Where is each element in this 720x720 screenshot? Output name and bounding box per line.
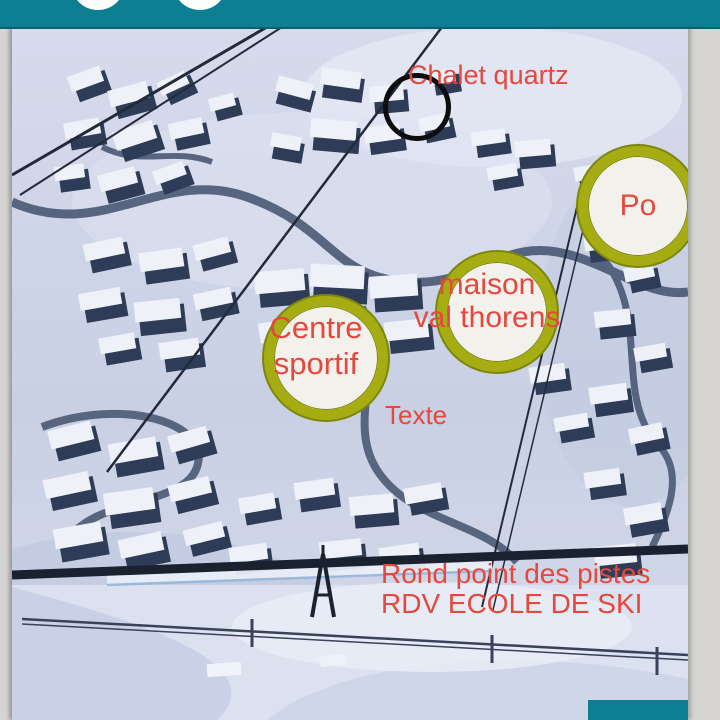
label-texte-placeholder[interactable]: Texte	[385, 400, 447, 431]
label-rond-point-line1: Rond point des pistes	[381, 559, 650, 589]
bottom-toolbar-corner	[588, 700, 688, 720]
logo-circle-icon	[173, 0, 227, 10]
resort-map[interactable]: Chalet quartz Po maison val thorens Cent…	[12, 27, 688, 720]
label-rond-point-line2: RDV ECOLE DE SKI	[381, 589, 650, 619]
logo-circle-icon	[71, 0, 125, 10]
top-bar	[0, 0, 720, 29]
label-centre-line1: Centre	[216, 310, 416, 346]
marker-po[interactable]: Po	[578, 146, 688, 266]
marker-po-label: Po	[620, 190, 657, 222]
label-centre-line2: sportif	[216, 346, 416, 382]
label-chalet-quartz[interactable]: Chalet quartz	[408, 60, 569, 91]
label-maison-line1: maison	[367, 268, 607, 301]
app-window: Chalet quartz Po maison val thorens Cent…	[0, 0, 720, 720]
label-rond-point[interactable]: Rond point des pistes RDV ECOLE DE SKI	[381, 559, 650, 619]
label-centre-sportif[interactable]: Centre sportif	[216, 310, 416, 382]
